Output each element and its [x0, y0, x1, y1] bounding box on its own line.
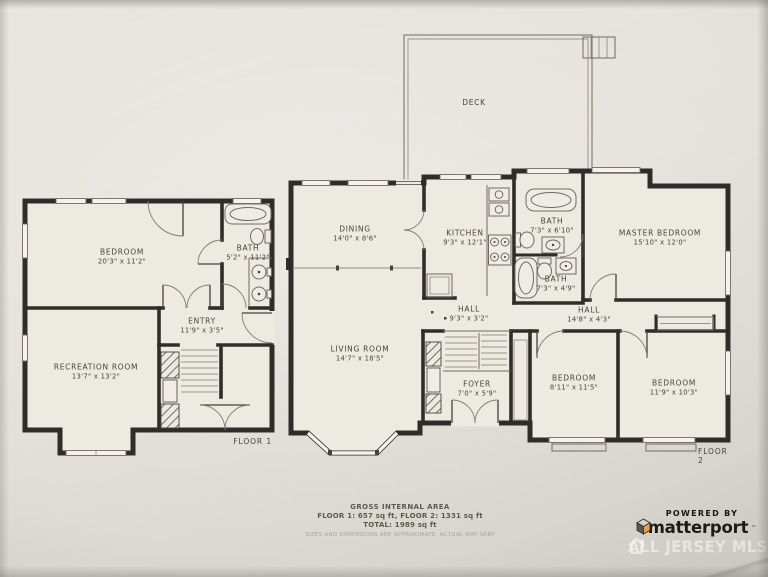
room-label-bath-upper: BATH 7'3" x 6'10" [530, 217, 574, 236]
powered-by-label: POWERED BY [636, 509, 768, 518]
room-name: BATH [530, 217, 574, 227]
room-dims: 9'3" x 12'1" [443, 238, 487, 247]
room-name: BATH [226, 244, 270, 254]
room-name: DINING [333, 225, 377, 235]
matterport-cube-icon [636, 518, 651, 535]
room-label-hall-small: HALL 9'3" x 3'2" [450, 305, 489, 324]
room-dims: 7'3" x 6'10" [530, 226, 574, 235]
room-dims: 8'11" x 11'5" [550, 383, 598, 392]
room-dims: 7'0" x 5'9" [458, 389, 497, 398]
room-name: ENTRY [180, 317, 224, 327]
room-dims: 7'3" x 4'9" [537, 284, 576, 293]
room-label-living-room: LIVING ROOM 14'7" x 18'5" [331, 345, 390, 364]
room-name: DECK [462, 98, 485, 108]
trademark-symbol: ™ [751, 525, 756, 531]
room-name: HALL [567, 306, 611, 316]
deck-plan [404, 35, 615, 181]
area-summary: GROSS INTERNAL AREA FLOOR 1: 657 sq ft, … [270, 503, 530, 538]
floor2-tag: FLOOR 2 [698, 447, 733, 465]
room-label-deck: DECK [462, 98, 485, 108]
room-dims: 20'3" x 11'2" [98, 257, 146, 266]
room-dims: 13'7" x 13'2" [54, 372, 138, 381]
room-label-hall-long: HALL 14'8" x 4'3" [567, 306, 611, 325]
room-label-entry: ENTRY 11'9" x 3'5" [180, 317, 224, 336]
room-label-bath-lower: BATH 7'3" x 4'9" [537, 275, 576, 294]
summary-total: TOTAL: 1989 sq ft [270, 521, 530, 529]
room-label-master-bedroom: MASTER BEDROOM 15'10" x 12'0" [619, 229, 701, 248]
room-dims: 11'9" x 10'3" [650, 388, 698, 397]
room-label-bedroom-right: BEDROOM 11'9" x 10'3" [650, 379, 698, 398]
mls-watermark: ALL JERSEY MLS [628, 537, 768, 556]
matterport-wordmark: matterport [648, 518, 749, 537]
floorplan-drawing [0, 0, 768, 577]
room-dims: 14'8" x 4'3" [567, 315, 611, 324]
room-name: BEDROOM [650, 379, 698, 389]
room-name: RECREATION ROOM [54, 363, 138, 373]
summary-disclaimer: SIZES AND DIMENSIONS ARE APPROXIMATE. AC… [270, 532, 530, 538]
floor1-tag: FLOOR 1 [233, 437, 272, 446]
room-name: LIVING ROOM [331, 345, 390, 355]
mls-watermark-text: ALL JERSEY MLS [628, 537, 768, 556]
room-dims: 15'10" x 12'0" [619, 238, 701, 247]
matterport-logo: matterport ™ [636, 518, 768, 537]
room-name: MASTER BEDROOM [619, 229, 701, 239]
room-label-kitchen: KITCHEN 9'3" x 12'1" [443, 229, 487, 248]
room-label-dining: DINING 14'0" x 8'6" [333, 225, 377, 244]
room-label-recreation-room: RECREATION ROOM 13'7" x 13'2" [54, 363, 138, 382]
summary-floors: FLOOR 1: 657 sq ft, FLOOR 2: 1331 sq ft [270, 512, 530, 520]
room-dims: 14'7" x 18'5" [331, 354, 390, 363]
floor2-plan [286, 168, 731, 456]
room-name: BEDROOM [98, 248, 146, 258]
summary-title: GROSS INTERNAL AREA [270, 503, 530, 511]
room-label-bedroom-left: BEDROOM 8'11" x 11'5" [550, 374, 598, 393]
room-dims: 5'2" x 11'2" [226, 253, 270, 262]
room-dims: 14'0" x 8'6" [333, 234, 377, 243]
room-name: KITCHEN [443, 229, 487, 239]
room-dims: 11'9" x 3'5" [180, 326, 224, 335]
room-name: BATH [537, 275, 576, 285]
floor1-plan [23, 199, 276, 456]
room-name: HALL [450, 305, 489, 315]
room-label-bedroom-f1: BEDROOM 20'3" x 11'2" [98, 248, 146, 267]
room-name: BEDROOM [550, 374, 598, 384]
room-dims: 9'3" x 3'2" [450, 314, 489, 323]
floorplan-sheet: BEDROOM 20'3" x 11'2" BATH 5'2" x 11'2" … [0, 0, 768, 577]
room-label-bath-f1: BATH 5'2" x 11'2" [226, 244, 270, 263]
room-name: FOYER [458, 380, 497, 390]
room-label-foyer: FOYER 7'0" x 5'9" [458, 380, 497, 399]
